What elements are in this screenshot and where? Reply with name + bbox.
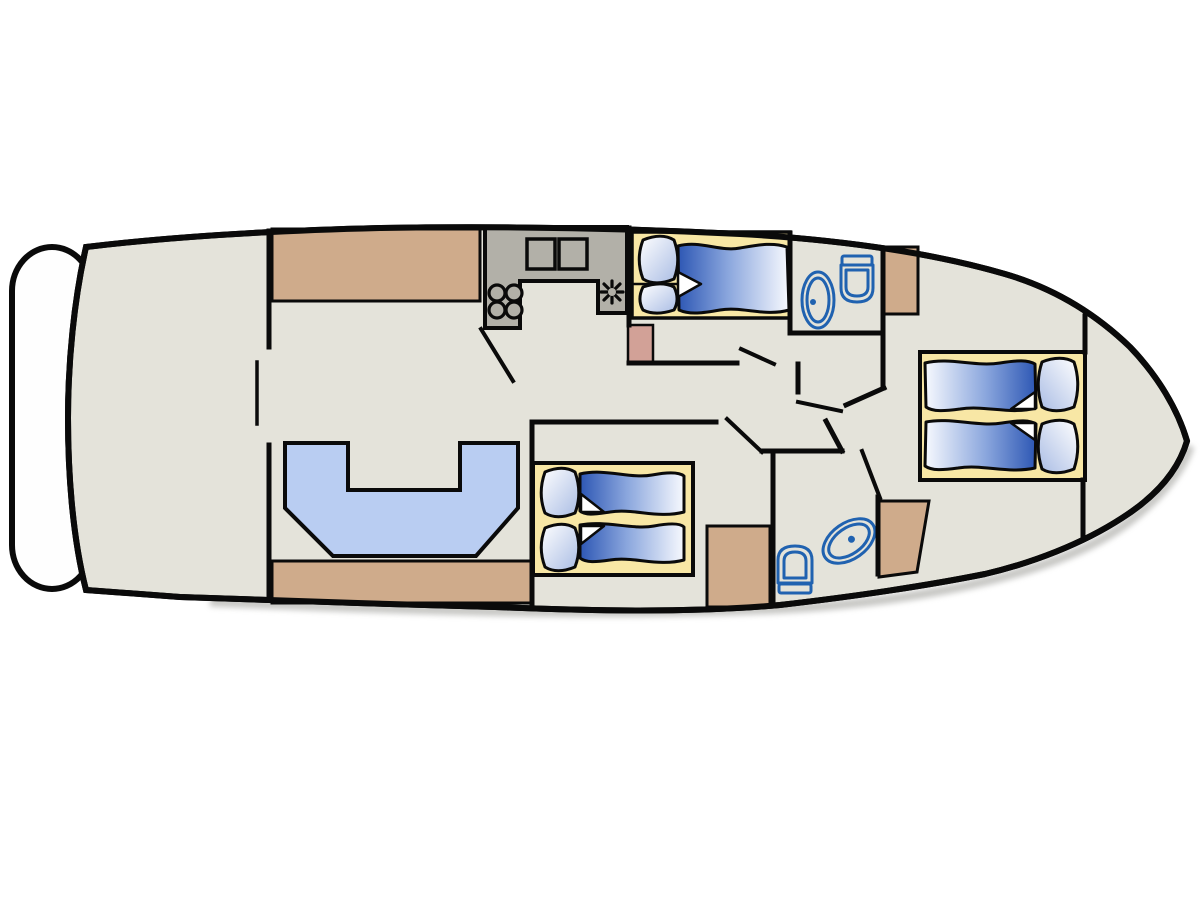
pillow [541, 524, 579, 571]
galley-sink-right [559, 239, 587, 269]
wardrobe-forward [883, 247, 918, 314]
screenshot-canvas [0, 0, 1200, 901]
salon-sideboard [272, 229, 480, 301]
pillow [541, 468, 579, 517]
galley-sink-left [527, 239, 555, 269]
vent-fan-icon [601, 281, 623, 303]
stove-burner [506, 285, 522, 301]
wardrobe-aft [707, 526, 770, 607]
salon-bench [272, 561, 532, 603]
washbasin-drain [810, 299, 816, 305]
pillow [1038, 420, 1078, 473]
pillow [1038, 358, 1078, 411]
stove-burner [489, 285, 505, 301]
bed-mid-double [639, 236, 789, 313]
locker-pink [628, 325, 653, 363]
pillow [639, 236, 678, 283]
boat-floorplan-svg [0, 0, 1200, 901]
duvet [678, 244, 789, 313]
stove-burner [506, 302, 522, 318]
pillow [640, 284, 677, 313]
stove-burner [489, 302, 505, 318]
